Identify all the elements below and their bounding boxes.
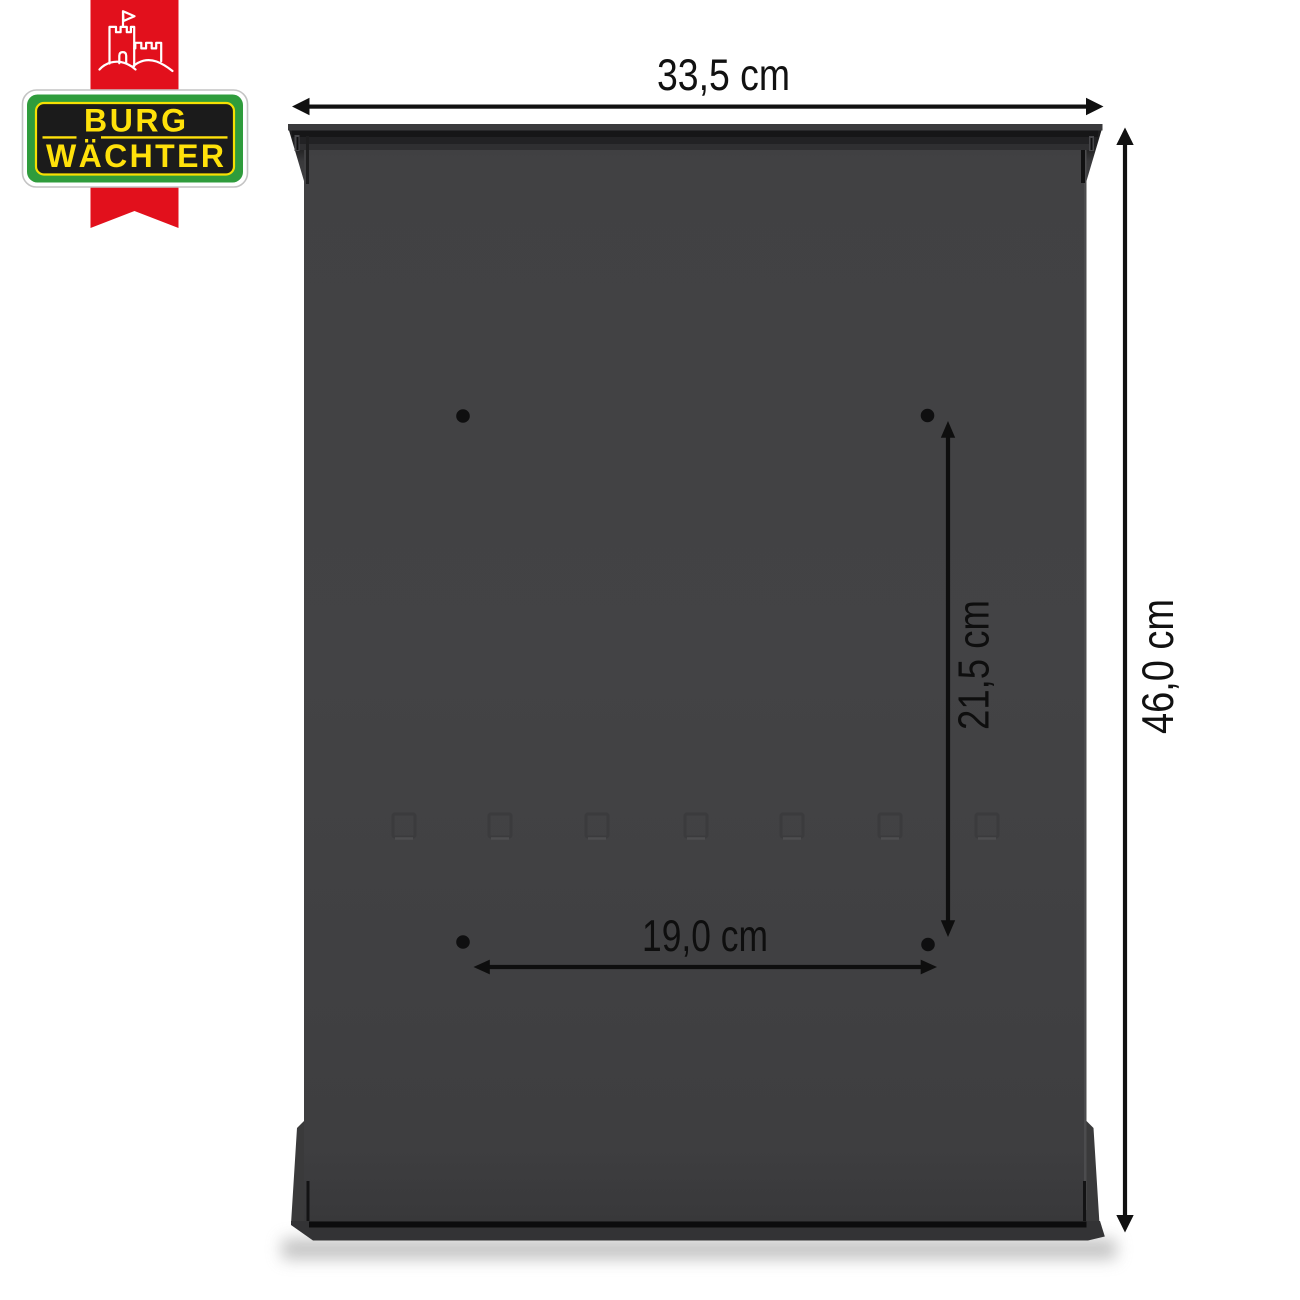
svg-text:33,5 cm: 33,5 cm xyxy=(657,51,790,100)
svg-text:BURG: BURG xyxy=(84,103,186,139)
svg-text:WÄCHTER: WÄCHTER xyxy=(46,138,224,174)
svg-text:46,0 cm: 46,0 cm xyxy=(1134,599,1183,734)
svg-text:21,5 cm: 21,5 cm xyxy=(951,600,999,730)
svg-text:19,0 cm: 19,0 cm xyxy=(642,912,768,961)
